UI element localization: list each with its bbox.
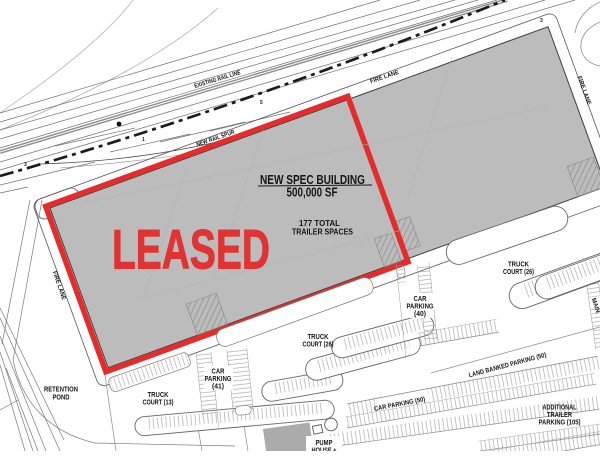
svg-text:TRUCK: TRUCK xyxy=(308,334,329,341)
svg-text:500,000 SF: 500,000 SF xyxy=(287,186,338,200)
svg-text:(40): (40) xyxy=(414,311,426,318)
svg-text:TRAILER SPACES: TRAILER SPACES xyxy=(292,227,353,237)
svg-text:PARKING (105): PARKING (105) xyxy=(539,420,581,427)
svg-text:RETENTION: RETENTION xyxy=(44,387,78,394)
svg-text:COURT (26): COURT (26) xyxy=(503,269,534,276)
svg-text:(41): (41) xyxy=(212,384,224,391)
svg-text:5: 5 xyxy=(260,100,263,106)
svg-text:CAR: CAR xyxy=(414,296,427,303)
svg-text:PUMP: PUMP xyxy=(316,440,333,447)
svg-text:CAR: CAR xyxy=(212,369,225,376)
svg-text:3: 3 xyxy=(540,18,543,24)
svg-text:COURT (13): COURT (13) xyxy=(143,400,174,407)
svg-text:PARKING: PARKING xyxy=(407,304,434,311)
svg-text:HOUSE +: HOUSE + xyxy=(312,448,337,452)
svg-text:TRAILER: TRAILER xyxy=(547,412,572,419)
svg-text:TRUCK: TRUCK xyxy=(148,392,169,399)
svg-text:LEASED: LEASED xyxy=(112,218,270,281)
svg-text:COURT (26): COURT (26) xyxy=(303,342,334,349)
svg-text:ADDITIONAL: ADDITIONAL xyxy=(543,405,578,412)
svg-text:1: 1 xyxy=(142,137,145,143)
svg-text:TRUCK: TRUCK xyxy=(508,262,529,269)
svg-text:3: 3 xyxy=(24,162,27,168)
svg-text:PARKING: PARKING xyxy=(205,376,232,383)
svg-text:POND: POND xyxy=(53,395,70,402)
